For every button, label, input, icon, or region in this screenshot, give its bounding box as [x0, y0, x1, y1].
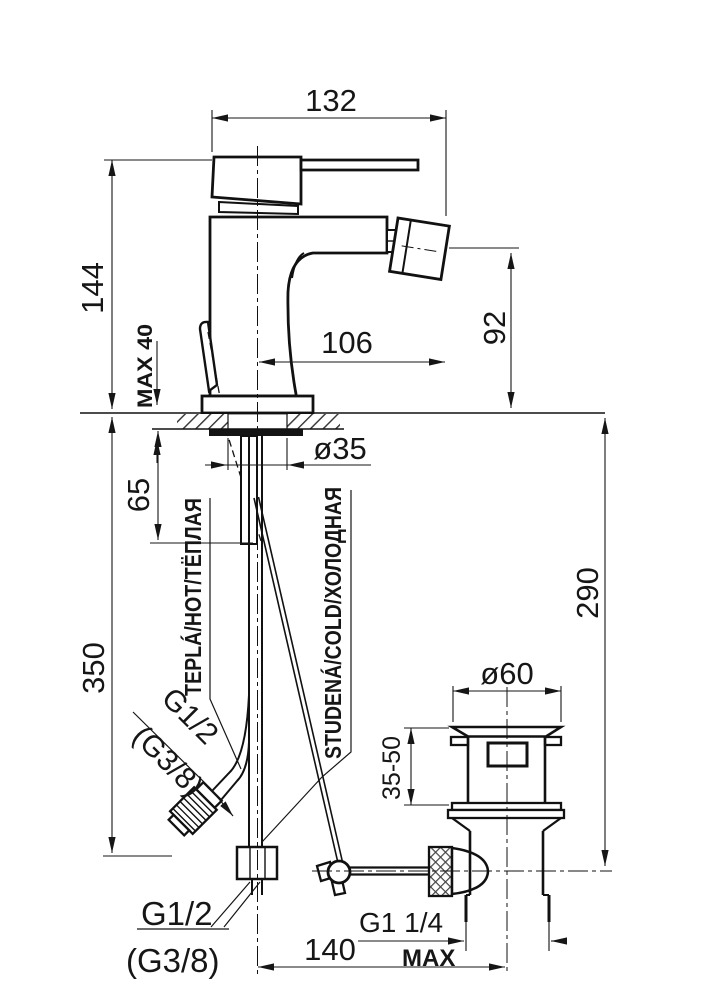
drain-assembly — [448, 727, 564, 951]
technical-drawing-page: 132 144 MAX 40 350 65 ø35 106 92 290 ø60… — [0, 0, 707, 1000]
dim-g114-max-label: MAX — [402, 945, 455, 972]
g38-bottom-label: (G3/8) — [126, 942, 220, 979]
dim-132-label: 132 — [305, 83, 357, 118]
dim-3550-label: 35-50 — [378, 736, 406, 800]
aerator-nozzle — [390, 218, 450, 279]
g12-bottom-label: G1/2 — [141, 895, 213, 932]
ball-joint — [328, 861, 350, 883]
hot-water-label: TEPLÁ/HOT/ТЁПЛАЯ — [179, 498, 206, 696]
dim-350-label: 350 — [76, 642, 111, 694]
handle-lever — [301, 160, 418, 170]
hot-hose-outer — [212, 695, 249, 791]
handle-body — [212, 157, 301, 204]
drain-tab-right — [545, 737, 561, 745]
dim-65-label: 65 — [121, 478, 156, 512]
dim-290-label: 290 — [570, 567, 605, 619]
hot-hose-inner — [221, 742, 249, 800]
dim-g114-label: G1 1/4 — [359, 907, 443, 938]
thread-labels: G1/2 (G3/8) G1/2 (G3/8) — [126, 682, 224, 979]
dim-60-label: ø60 — [480, 656, 533, 691]
bidet-mixer-drawing: 132 144 MAX 40 350 65 ø35 106 92 290 ø60… — [0, 0, 707, 1000]
cold-water-label: STUDENÁ/COLD/ХОЛОДНАЯ — [319, 487, 346, 759]
dim-92-label: 92 — [477, 311, 512, 345]
drain-tab-left — [451, 737, 468, 745]
dim-140-label: 140 — [304, 932, 356, 967]
counter-hatch-left — [177, 414, 228, 429]
counter-hatch-right — [287, 414, 340, 429]
dim-106-label: 106 — [321, 325, 373, 360]
dim-35-label: ø35 — [313, 431, 366, 466]
faucet-body-outline — [210, 217, 387, 396]
dim-max40-label: MAX 40 — [134, 324, 157, 408]
drain-lower-flange-2 — [448, 810, 564, 818]
dim-144-label: 144 — [75, 262, 110, 314]
